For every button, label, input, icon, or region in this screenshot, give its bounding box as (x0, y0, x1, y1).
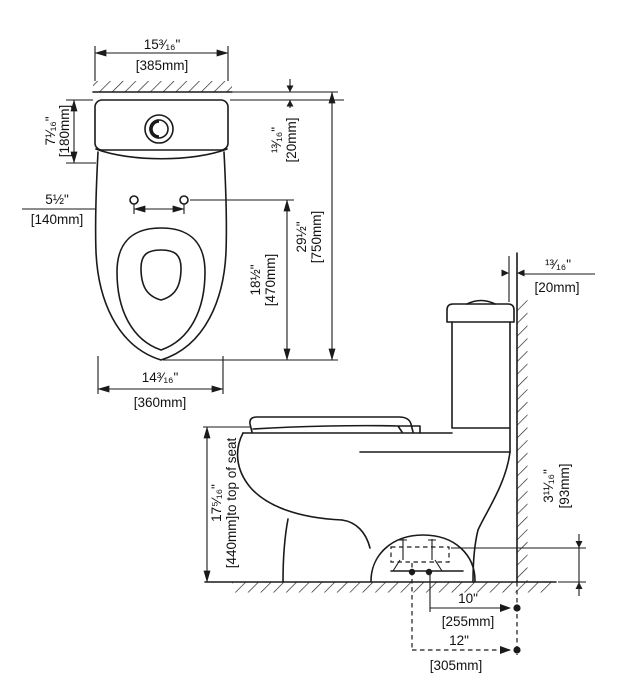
dim-seat-height-inch: 17⁵⁄₁₆" (209, 484, 224, 522)
toilet-dimension-drawing: 15³⁄₁₆" [385mm] 7¹⁄₁₆" [180mm] 5½" [140m… (0, 0, 625, 700)
dim-side-wall-gap: ¹³⁄₁₆" [20mm] (502, 256, 596, 302)
dim-outlet-height-mm: [93mm] (557, 463, 572, 508)
dim-bowl-width-inch: 14³⁄₁₆" (142, 370, 179, 385)
deck-lines (243, 433, 510, 452)
dim-plan-width-mm: [385mm] (136, 58, 189, 73)
pedestal-front (283, 519, 288, 582)
dim-rough-in-12-inch: 12" (449, 633, 469, 648)
drawing-sheet: 15³⁄₁₆" [385mm] 7¹⁄₁₆" [180mm] 5½" [140m… (0, 0, 625, 700)
dim-seat-length-inch: 18½" (248, 264, 263, 295)
bowl-underside (342, 520, 370, 548)
seat-ring (117, 228, 205, 350)
floor-hatch (205, 582, 556, 593)
trap-dome (371, 535, 475, 581)
plan-view: 15³⁄₁₆" [385mm] 7¹⁄₁₆" [180mm] 5½" [140m… (22, 37, 344, 410)
dim-plan-wall-gap-mm: [20mm] (284, 117, 299, 162)
dim-overall-depth-mm: [750mm] (309, 211, 324, 264)
pedestal-back (473, 452, 510, 582)
side-view: ¹³⁄₁₆" [20mm] 17⁵⁄₁₆" [440mm]to top of s… (203, 253, 595, 673)
dim-rough-in-10-mm: [255mm] (442, 614, 495, 629)
dim-side-wall-gap-mm: [20mm] (534, 280, 579, 295)
dim-plan-width: 15³⁄₁₆" [385mm] (95, 37, 228, 81)
plan-toilet-outline (95, 100, 228, 360)
dim-bowl-width-mm: [360mm] (134, 395, 187, 410)
tank-lid (447, 304, 514, 322)
outlet-flange (391, 539, 463, 575)
side-toilet-outline (238, 301, 514, 583)
dim-overall-depth: 29½" [750mm] (163, 92, 338, 360)
dim-seat-length-mm: [470mm] (263, 254, 278, 307)
bowl-profile (238, 433, 342, 520)
dim-rough-in-10-inch: 10" (458, 591, 478, 606)
dim-outlet-height-inch: 3¹¹⁄₁₆" (541, 469, 556, 503)
dim-bolt-spacing-mm: [140mm] (31, 212, 84, 227)
dim-seat-length: 18½" [470mm] (190, 200, 294, 360)
bowl-opening (141, 250, 181, 300)
tank-side (452, 322, 510, 452)
dim-plan-width-inch: 15³⁄₁₆" (144, 37, 181, 52)
plan-wall-hatch (93, 81, 232, 92)
dim-bowl-width: 14³⁄₁₆" [360mm] (98, 356, 223, 410)
seat-bolt-left (130, 196, 138, 204)
dim-plan-wall-gap-inch: ¹³⁄₁₆" (269, 127, 284, 153)
dim-tank-depth: 7¹⁄₁₆" [180mm] (43, 100, 96, 163)
seat-edge (253, 426, 420, 433)
flush-button-icon (145, 115, 173, 143)
dim-rough-in-12-mm: [305mm] (430, 658, 483, 673)
dim-bolt-spacing: 5½" [140mm] (22, 192, 184, 227)
dim-tank-depth-mm: [180mm] (57, 105, 72, 158)
dim-tank-depth-inch: 7¹⁄₁₆" (43, 116, 58, 145)
seat-lid (250, 417, 413, 432)
dim-side-wall-gap-inch: ¹³⁄₁₆" (545, 257, 571, 272)
dim-overall-depth-inch: 29½" (294, 221, 309, 252)
side-wall-hatch (517, 253, 528, 582)
dim-seat-height-mm: [440mm]to top of seat (224, 437, 239, 568)
closet-bolt-right (426, 569, 432, 575)
bowl-outline-plan (96, 152, 227, 360)
seat-bolt-right (180, 196, 188, 204)
dim-seat-height: 17⁵⁄₁₆" [440mm]to top of seat (203, 427, 250, 582)
dim-bolt-spacing-inch: 5½" (45, 192, 69, 207)
